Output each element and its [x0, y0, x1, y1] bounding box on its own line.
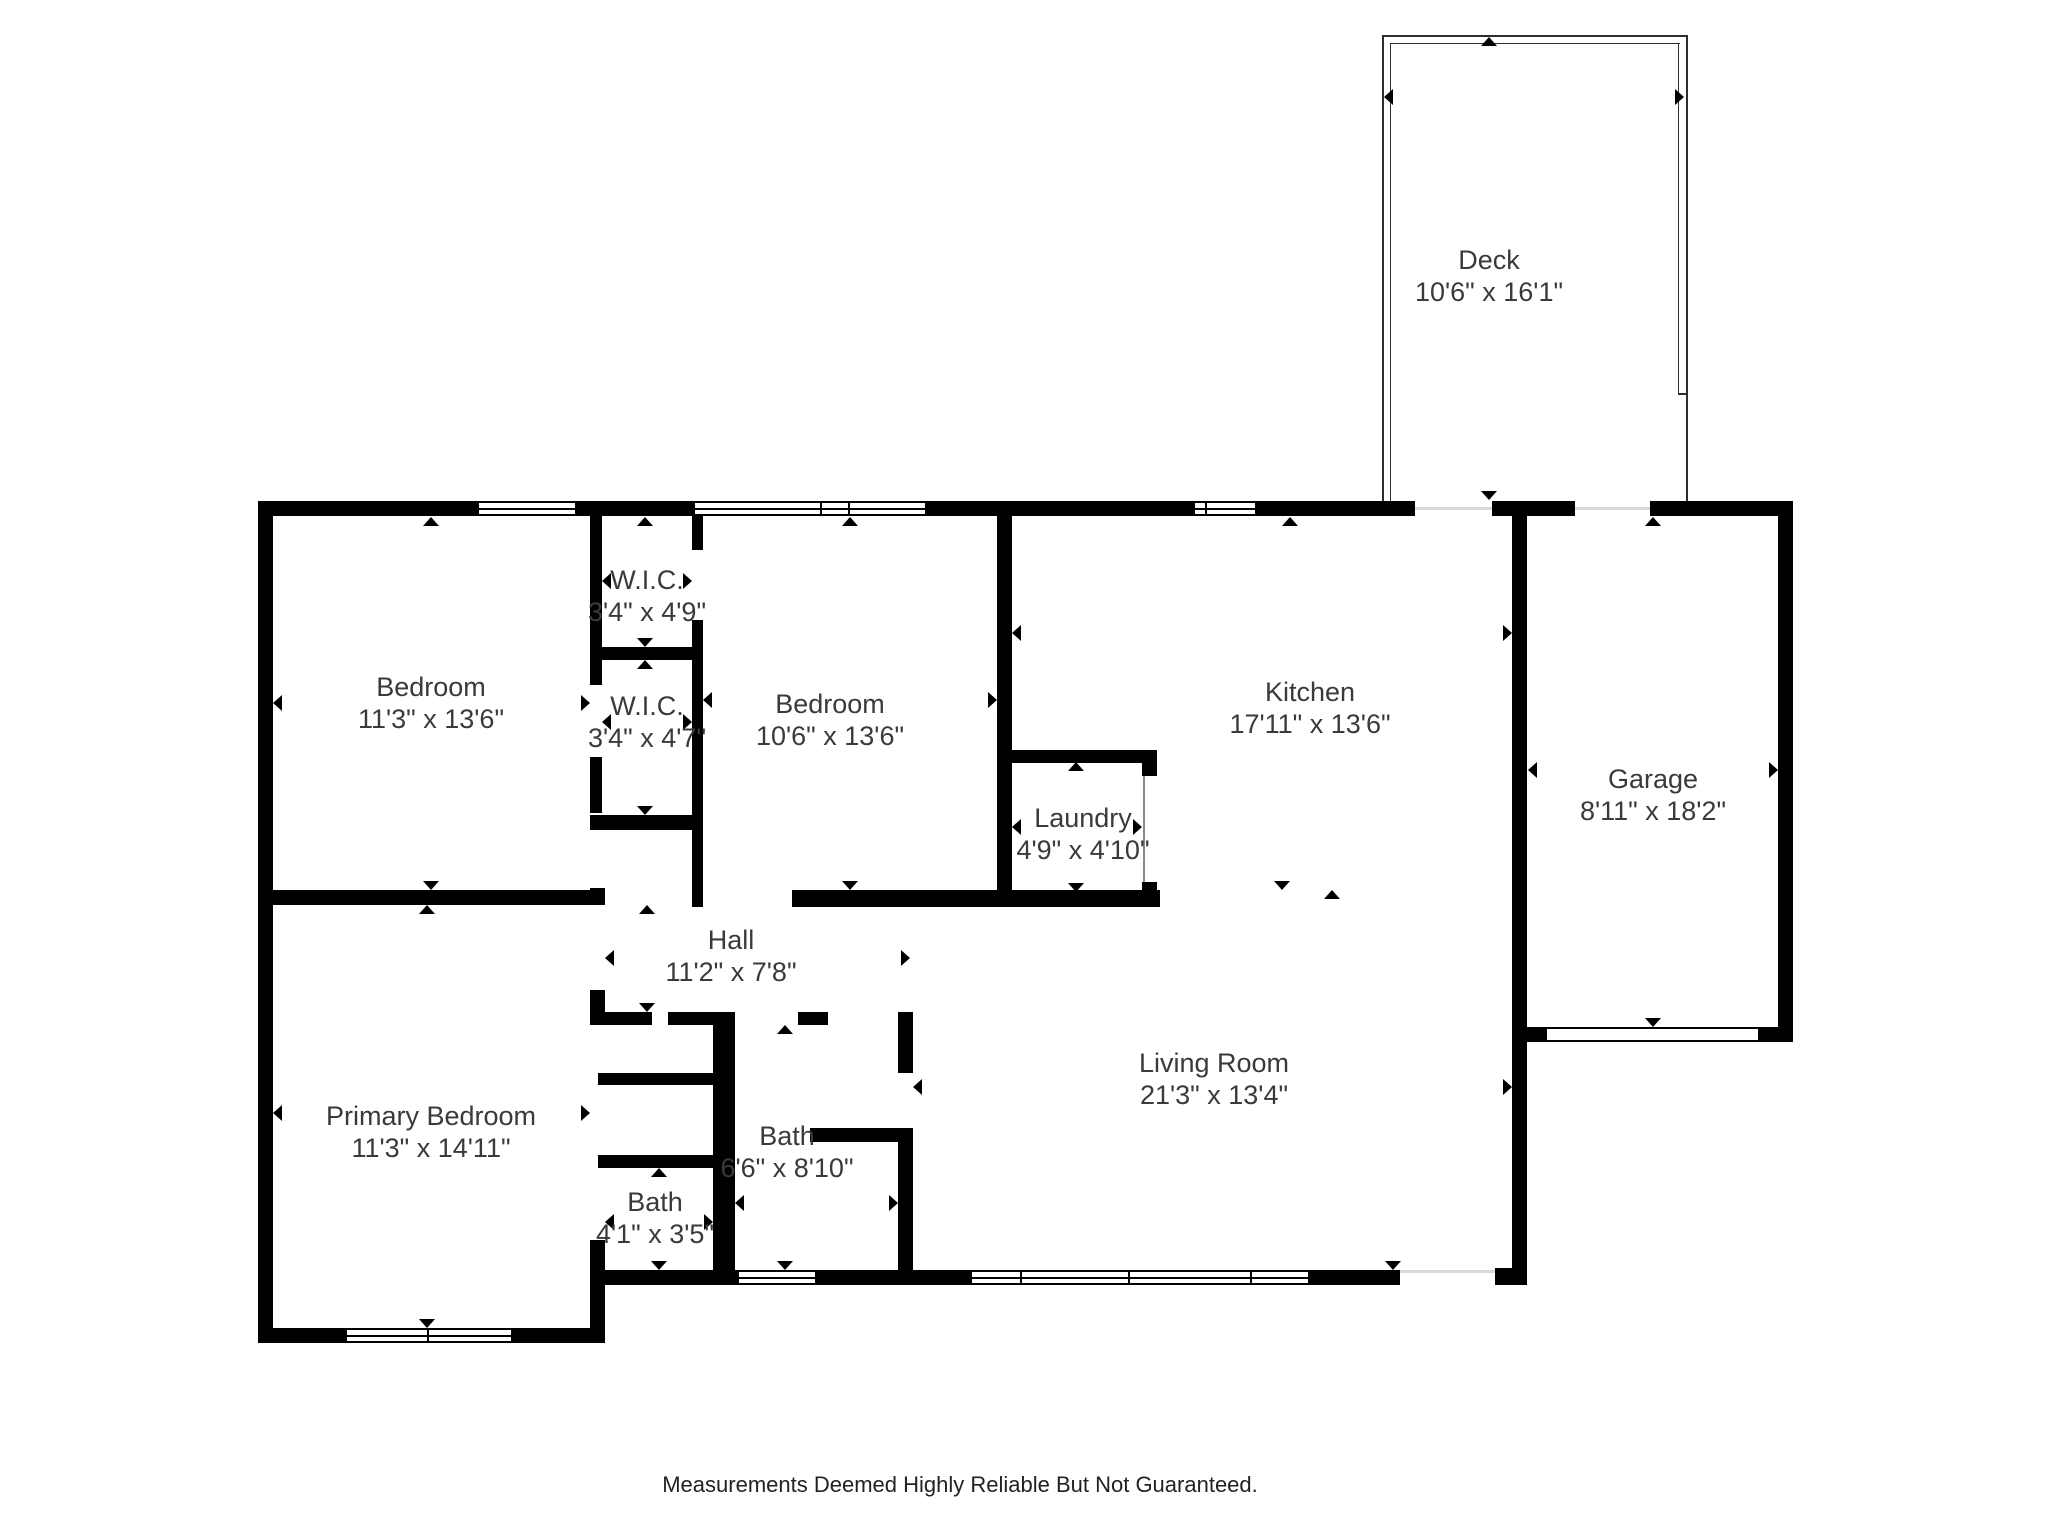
room-dims: 3'4" x 4'7"	[588, 722, 706, 754]
wall	[692, 620, 703, 907]
arrow-down-icon	[419, 1319, 435, 1328]
window	[345, 1328, 513, 1343]
arrow-right-icon	[889, 1195, 898, 1211]
arrow-left-icon	[1528, 762, 1537, 778]
arrow-left-icon	[913, 1079, 922, 1095]
arrow-down-icon	[842, 881, 858, 890]
arrow-up-icon	[637, 517, 653, 526]
deck-railing	[1382, 35, 1384, 502]
wall	[1758, 1027, 1793, 1042]
wall	[927, 501, 1193, 516]
room-dims: 3'4" x 4'9"	[588, 596, 706, 628]
arrow-left-icon	[273, 1105, 282, 1121]
wall	[258, 501, 477, 516]
arrow-down-icon	[651, 1261, 667, 1270]
room-dims: 17'11" x 13'6"	[1229, 708, 1390, 740]
room-label-kitchen: Kitchen 17'11" x 13'6"	[1229, 676, 1390, 740]
garage-door	[1547, 1027, 1758, 1042]
wall	[1650, 501, 1793, 516]
wall	[1527, 1027, 1547, 1042]
deck-railing	[1686, 35, 1688, 502]
arrow-left-icon	[735, 1195, 744, 1211]
deck-railing	[1678, 393, 1688, 395]
room-label-bath-main: Bath 6'6" x 8'10"	[720, 1120, 853, 1184]
room-dims: 10'6" x 13'6"	[756, 720, 904, 752]
room-name: Bath	[596, 1186, 714, 1218]
wall	[1512, 501, 1527, 1285]
room-name: Bedroom	[358, 671, 504, 703]
room-label-deck: Deck 10'6" x 16'1"	[1415, 244, 1563, 308]
footer-disclaimer: Measurements Deemed Highly Reliable But …	[360, 1472, 1560, 1498]
wall	[577, 501, 693, 516]
deck-railing	[1390, 43, 1391, 502]
wall	[590, 757, 602, 813]
arrow-down-icon	[639, 1003, 655, 1012]
wall	[692, 515, 703, 550]
deck-railing	[1390, 43, 1680, 44]
arrow-left-icon	[605, 950, 614, 966]
door-opening	[1575, 507, 1650, 510]
wall	[598, 1073, 713, 1085]
wall	[1257, 501, 1415, 516]
wall	[798, 1012, 828, 1025]
wall	[590, 990, 605, 1025]
wall	[590, 815, 703, 830]
arrow-up-icon	[842, 517, 858, 526]
room-name: Kitchen	[1229, 676, 1390, 708]
arrow-up-icon	[637, 660, 653, 669]
arrow-up-icon	[423, 517, 439, 526]
window	[477, 501, 577, 516]
wall	[817, 1270, 970, 1285]
arrow-down-icon	[423, 881, 439, 890]
room-dims: 4'9" x 4'10"	[1016, 834, 1149, 866]
room-name: Primary Bedroom	[326, 1100, 536, 1132]
arrow-up-icon	[419, 905, 435, 914]
wall	[590, 1240, 605, 1343]
room-dims: 6'6" x 8'10"	[720, 1152, 853, 1184]
room-dims: 8'11" x 18'2"	[1580, 795, 1726, 827]
arrow-up-icon	[1282, 517, 1298, 526]
wall	[590, 1270, 737, 1285]
arrow-down-icon	[1274, 881, 1290, 890]
room-dims: 11'2" x 7'8"	[665, 956, 796, 988]
deck-railing	[1382, 35, 1688, 37]
window	[970, 1270, 1310, 1285]
room-name: Garage	[1580, 763, 1726, 795]
room-dims: 10'6" x 16'1"	[1415, 276, 1563, 308]
room-label-bedroom2: Bedroom 10'6" x 13'6"	[756, 688, 904, 752]
wall	[1142, 750, 1157, 776]
floor-plan: Deck 10'6" x 16'1" Bedroom 11'3" x 13'6"…	[0, 0, 2048, 1536]
wall	[997, 516, 1012, 905]
arrow-up-icon	[1068, 762, 1084, 771]
arrow-right-icon	[988, 692, 997, 708]
room-name: Living Room	[1139, 1047, 1289, 1079]
wall	[590, 647, 703, 660]
room-name: Deck	[1415, 244, 1563, 276]
room-label-wic2: W.I.C. 3'4" x 4'7"	[588, 690, 706, 754]
room-dims: 4'1" x 3'5"	[596, 1218, 714, 1250]
arrow-down-icon	[637, 638, 653, 647]
door-opening	[1400, 1270, 1495, 1273]
room-dims: 11'3" x 14'11"	[326, 1132, 536, 1164]
arrow-down-icon	[637, 806, 653, 815]
wall	[1778, 501, 1793, 1042]
arrow-right-icon	[901, 950, 910, 966]
arrow-right-icon	[1503, 1079, 1512, 1095]
arrow-down-icon	[1481, 491, 1497, 500]
arrow-up-icon	[1481, 37, 1497, 46]
door-opening	[1415, 507, 1492, 510]
room-dims: 21'3" x 13'4"	[1139, 1079, 1289, 1111]
room-name: Bedroom	[756, 688, 904, 720]
arrow-up-icon	[777, 1025, 793, 1034]
window	[1193, 501, 1257, 516]
arrow-up-icon	[1645, 517, 1661, 526]
arrow-down-icon	[1385, 1261, 1401, 1270]
wall	[258, 501, 273, 1343]
room-dims: 11'3" x 13'6"	[358, 703, 504, 735]
room-label-laundry: Laundry 4'9" x 4'10"	[1016, 802, 1149, 866]
wall	[1142, 882, 1157, 907]
wall	[258, 890, 598, 905]
arrow-right-icon	[1769, 762, 1778, 778]
wall	[1492, 501, 1575, 516]
room-label-hall: Hall 11'2" x 7'8"	[665, 924, 796, 988]
room-name: W.I.C.	[588, 564, 706, 596]
room-label-bath-ensuite: Bath 4'1" x 3'5"	[596, 1186, 714, 1250]
room-label-primary: Primary Bedroom 11'3" x 14'11"	[326, 1100, 536, 1164]
room-label-wic1: W.I.C. 3'4" x 4'9"	[588, 564, 706, 628]
wall	[898, 1012, 913, 1073]
room-name: W.I.C.	[588, 690, 706, 722]
wall	[792, 890, 1160, 907]
wall	[1495, 1268, 1527, 1285]
arrow-down-icon	[777, 1261, 793, 1270]
arrow-right-icon	[1503, 625, 1512, 641]
arrow-up-icon	[639, 905, 655, 914]
arrow-down-icon	[1645, 1018, 1661, 1027]
window	[693, 501, 927, 516]
arrow-left-icon	[1384, 89, 1393, 105]
wall	[258, 1328, 345, 1343]
room-name: Bath	[720, 1120, 853, 1152]
arrow-up-icon	[651, 1168, 667, 1177]
room-label-bedroom1: Bedroom 11'3" x 13'6"	[358, 671, 504, 735]
wall	[605, 1012, 652, 1025]
arrow-left-icon	[1012, 625, 1021, 641]
room-name: Laundry	[1016, 802, 1149, 834]
arrow-down-icon	[1068, 883, 1084, 892]
wall	[1310, 1270, 1400, 1285]
room-name: Hall	[665, 924, 796, 956]
room-label-living: Living Room 21'3" x 13'4"	[1139, 1047, 1289, 1111]
wall	[598, 1155, 713, 1168]
wall	[898, 1128, 913, 1270]
window	[737, 1270, 817, 1285]
arrow-up-icon	[1324, 890, 1340, 899]
room-label-garage: Garage 8'11" x 18'2"	[1580, 763, 1726, 827]
arrow-left-icon	[273, 695, 282, 711]
wall	[590, 888, 605, 905]
arrow-right-icon	[581, 1105, 590, 1121]
arrow-right-icon	[1675, 89, 1684, 105]
